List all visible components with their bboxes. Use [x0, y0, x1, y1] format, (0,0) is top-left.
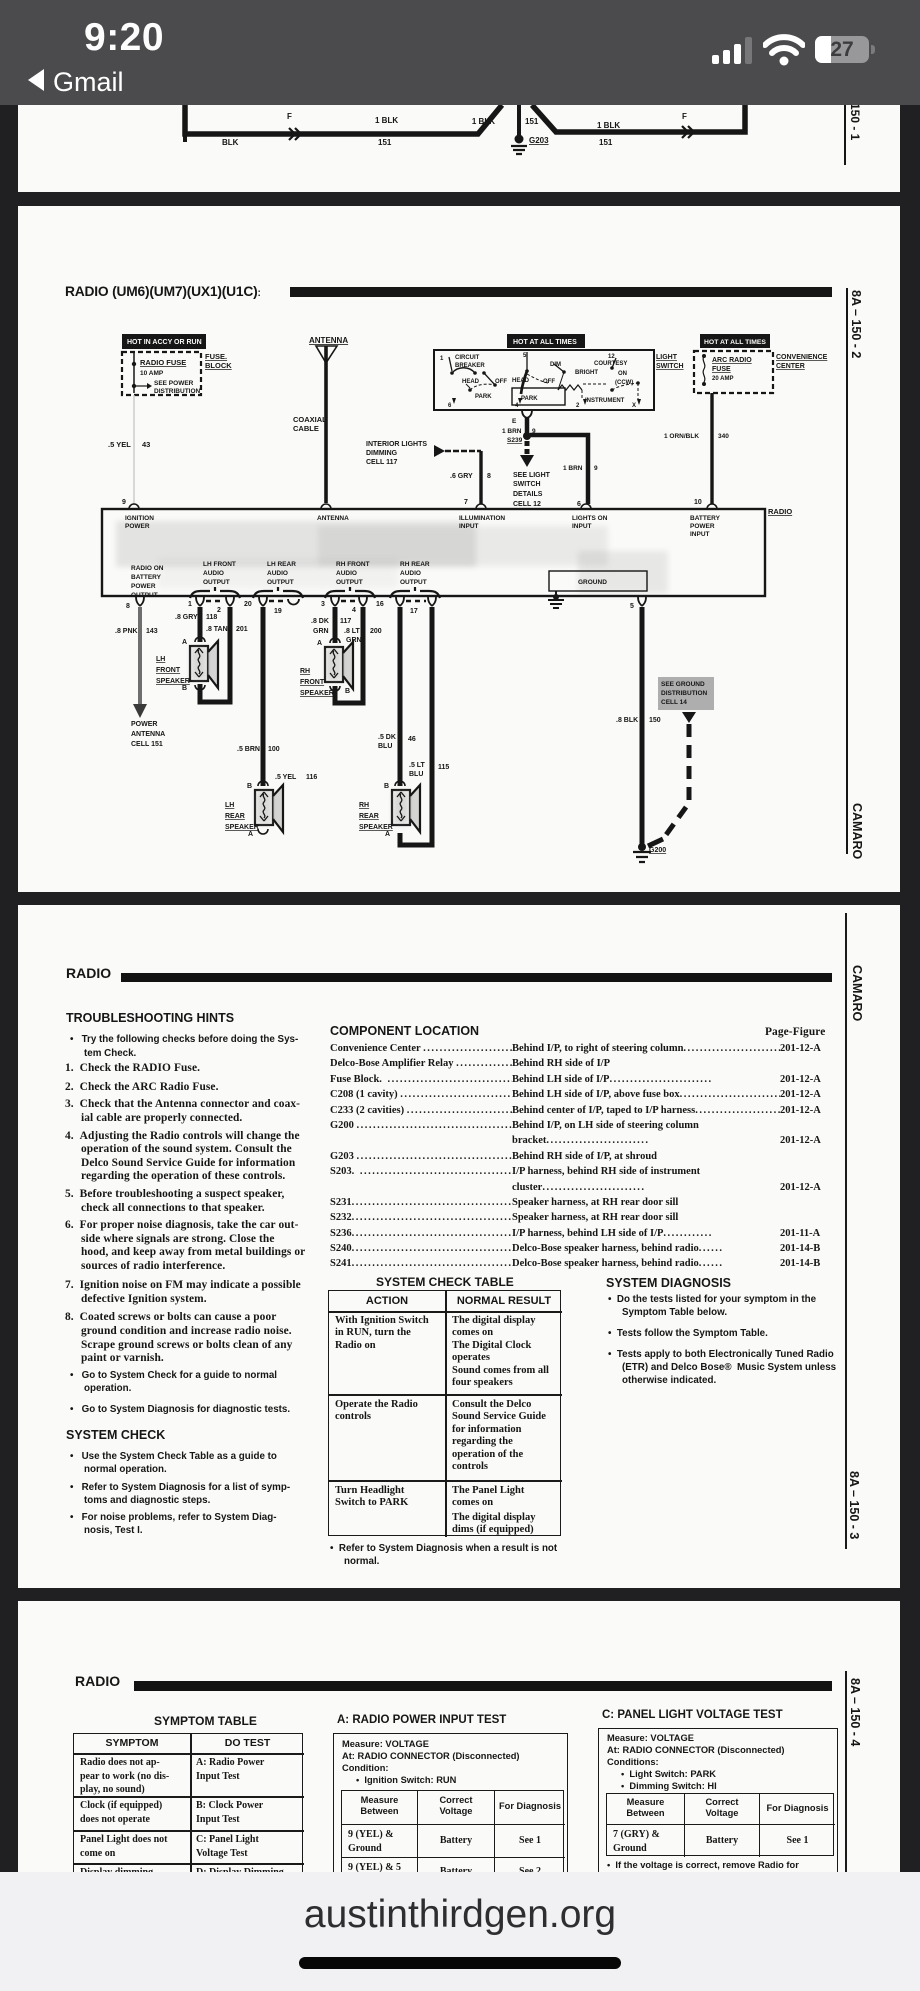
svg-text:.5 YEL: .5 YEL [108, 440, 131, 449]
svg-text:ILLUMINATION: ILLUMINATION [459, 515, 505, 522]
svg-text:3: 3 [321, 601, 325, 608]
svg-text:B: B [247, 783, 252, 790]
svg-text:2: 2 [217, 607, 221, 614]
svg-text:IGNITION: IGNITION [125, 515, 154, 522]
svg-text:POWER: POWER [131, 721, 157, 728]
svg-text:DISTRIBUTION: DISTRIBUTION [661, 690, 708, 697]
svg-text:B: B [384, 783, 389, 790]
svg-text:(CCW): (CCW) [615, 380, 633, 386]
svg-text:RH REAR: RH REAR [400, 561, 430, 568]
svg-text:340: 340 [718, 433, 729, 440]
svg-text:CONVENIENCE: CONVENIENCE [776, 354, 828, 361]
svg-text:1 BRN: 1 BRN [502, 428, 522, 435]
svg-text:COURTESY: COURTESY [594, 361, 627, 367]
svg-text:.8 TAN: .8 TAN [206, 626, 228, 633]
svg-text:150 - 1: 150 - 1 [848, 105, 862, 141]
svg-text:2: 2 [576, 403, 580, 409]
svg-text:CELL 12: CELL 12 [513, 501, 541, 508]
svg-text:BRIGHT: BRIGHT [575, 370, 598, 376]
svg-text:RADIO FUSE: RADIO FUSE [140, 358, 186, 367]
svg-text:B: B [345, 688, 350, 695]
svg-text:115: 115 [438, 764, 449, 771]
svg-text:SWITCH: SWITCH [656, 363, 684, 370]
svg-text:F: F [682, 112, 687, 121]
svg-text:B: B [182, 685, 187, 692]
svg-text:16: 16 [376, 601, 384, 608]
svg-text:OUTPUT: OUTPUT [267, 579, 294, 586]
svg-text:151: 151 [599, 138, 613, 147]
svg-text:151: 151 [378, 138, 392, 147]
svg-text:8: 8 [487, 473, 491, 480]
svg-text:4: 4 [352, 607, 356, 614]
svg-text:GRN: GRN [313, 628, 329, 635]
svg-text:POWER: POWER [131, 583, 156, 590]
svg-text:DETAILS: DETAILS [513, 491, 543, 498]
svg-text:1: 1 [188, 601, 192, 608]
svg-text:RH FRONT: RH FRONT [336, 561, 370, 568]
svg-text:143: 143 [146, 628, 158, 635]
svg-text:.8 BLK: .8 BLK [616, 717, 638, 724]
svg-text:SPEAKER: SPEAKER [225, 824, 259, 831]
svg-text:CAMARO: CAMARO [850, 803, 864, 860]
svg-text:10 AMP: 10 AMP [140, 370, 164, 377]
svg-text:SPEAKER: SPEAKER [300, 690, 334, 697]
svg-text:A: A [248, 831, 253, 838]
svg-text:ANTENNA: ANTENNA [309, 336, 348, 345]
svg-text:1 BLK: 1 BLK [375, 116, 398, 125]
svg-text:RH: RH [359, 802, 369, 809]
svg-text:1 BLK: 1 BLK [472, 117, 495, 126]
svg-text:G203: G203 [529, 136, 549, 145]
svg-text:INTERIOR LIGHTS: INTERIOR LIGHTS [366, 441, 427, 448]
svg-text:.8 PNK: .8 PNK [115, 628, 138, 635]
svg-text:LIGHTS ON: LIGHTS ON [572, 515, 608, 522]
svg-text:DIMMING: DIMMING [366, 450, 398, 457]
svg-text:100: 100 [268, 746, 280, 753]
svg-text:LIGHT: LIGHT [656, 354, 678, 361]
svg-text:INPUT: INPUT [459, 523, 479, 530]
svg-text:BLU: BLU [409, 771, 423, 778]
svg-text:LH REAR: LH REAR [267, 561, 296, 568]
svg-text:A: A [317, 640, 322, 647]
svg-text:RADIO ON: RADIO ON [131, 565, 164, 572]
svg-text:RADIO: RADIO [768, 507, 792, 516]
svg-text:6: 6 [448, 403, 452, 409]
svg-text:HEAD: HEAD [512, 378, 530, 384]
svg-text:ANTENNA: ANTENNA [131, 731, 165, 738]
svg-text:1 ORN/BLK: 1 ORN/BLK [664, 433, 699, 440]
svg-text:SWITCH: SWITCH [513, 481, 541, 488]
svg-text:AUDIO: AUDIO [203, 570, 224, 577]
svg-text:150: 150 [649, 717, 661, 724]
svg-text:LH FRONT: LH FRONT [203, 561, 236, 568]
svg-text:1 BLK: 1 BLK [597, 121, 620, 130]
svg-text:SEE GROUND: SEE GROUND [661, 681, 705, 688]
svg-text:A: A [182, 639, 187, 646]
svg-text:E: E [512, 418, 517, 425]
svg-text:ANTENNA: ANTENNA [317, 515, 349, 522]
svg-text:SEE POWER: SEE POWER [154, 380, 194, 387]
svg-text:CELL 151: CELL 151 [131, 741, 163, 748]
svg-text:118: 118 [206, 614, 217, 621]
svg-text:200: 200 [370, 628, 382, 635]
svg-text:1: 1 [440, 356, 444, 362]
svg-text:RADIO (UM6)(UM7)(UX1)(U1C):: RADIO (UM6)(UM7)(UX1)(U1C): [65, 284, 261, 299]
svg-text:46: 46 [408, 736, 416, 743]
svg-text:43: 43 [142, 440, 150, 449]
svg-text:GROUND: GROUND [578, 579, 607, 586]
svg-text:PARK: PARK [521, 396, 538, 402]
svg-text:REAR: REAR [359, 813, 379, 820]
svg-text:8: 8 [126, 603, 130, 610]
svg-text:CABLE: CABLE [293, 424, 319, 433]
svg-text:REAR: REAR [225, 813, 245, 820]
svg-text:1 BRN: 1 BRN [563, 465, 583, 472]
svg-text:19: 19 [274, 608, 282, 615]
svg-text:S239: S239 [507, 437, 523, 444]
svg-text:OUTPUT: OUTPUT [400, 579, 427, 586]
svg-text:17: 17 [410, 608, 418, 615]
svg-text:AUDIO: AUDIO [336, 570, 357, 577]
svg-text:HOT AT ALL TIMES: HOT AT ALL TIMES [704, 339, 766, 346]
svg-text:FRONT: FRONT [300, 679, 325, 686]
svg-text:X: X [632, 403, 636, 409]
svg-text:BATTERY: BATTERY [131, 574, 162, 581]
svg-text:ON: ON [618, 371, 627, 377]
svg-text:.8 DK: .8 DK [311, 618, 329, 625]
svg-text:AUDIO: AUDIO [400, 570, 421, 577]
svg-text:FUSE.: FUSE. [205, 352, 227, 361]
svg-text:F: F [287, 112, 292, 121]
svg-text:SEE LIGHT: SEE LIGHT [513, 472, 551, 479]
svg-text:COAXIAL: COAXIAL [293, 415, 327, 424]
svg-text:12: 12 [608, 354, 615, 360]
svg-text:BATTERY: BATTERY [690, 515, 721, 522]
svg-text:.5 LT: .5 LT [409, 762, 426, 769]
svg-text:10: 10 [694, 499, 702, 506]
svg-text:117: 117 [340, 618, 351, 625]
svg-text:FRONT: FRONT [156, 667, 181, 674]
svg-text:.5 DK: .5 DK [378, 734, 396, 741]
svg-text:7: 7 [464, 499, 468, 506]
svg-text:BLU: BLU [378, 743, 392, 750]
svg-text:INSTRUMENT: INSTRUMENT [585, 398, 625, 404]
svg-text:INPUT: INPUT [572, 523, 592, 530]
svg-text:4: 4 [515, 403, 519, 409]
svg-text:9: 9 [594, 465, 598, 472]
svg-text:A: A [385, 831, 390, 838]
svg-text:9: 9 [122, 499, 126, 506]
svg-text:.6 GRY: .6 GRY [450, 473, 473, 480]
svg-text:G200: G200 [649, 847, 666, 854]
svg-text:.8 GRY: .8 GRY [175, 614, 198, 621]
svg-text:SPEAKER: SPEAKER [359, 824, 393, 831]
svg-text:HEAD: HEAD [462, 379, 480, 385]
svg-text:FUSE: FUSE [712, 366, 731, 373]
svg-text:RH: RH [300, 668, 310, 675]
svg-text:6: 6 [577, 501, 581, 508]
svg-text:OFF: OFF [543, 379, 555, 385]
svg-text:POWER: POWER [125, 523, 150, 530]
svg-text:BLOCK: BLOCK [205, 361, 232, 370]
svg-text:OFF: OFF [495, 379, 507, 385]
svg-text:POWER: POWER [690, 523, 715, 530]
svg-text:CENTER: CENTER [776, 363, 805, 370]
svg-text:.5 YEL: .5 YEL [275, 774, 297, 781]
svg-text:INPUT: INPUT [690, 531, 710, 538]
svg-text:CELL 117: CELL 117 [366, 459, 397, 466]
svg-text:116: 116 [306, 774, 317, 781]
svg-text:DISTRIBUTION: DISTRIBUTION [154, 388, 201, 395]
svg-text:201: 201 [236, 626, 248, 633]
svg-text:.8 LT: .8 LT [344, 628, 361, 635]
svg-text:SPEAKER: SPEAKER [156, 678, 190, 685]
svg-text:OUTPUT: OUTPUT [336, 579, 363, 586]
svg-text:LH: LH [156, 656, 165, 663]
svg-text:BLK: BLK [222, 138, 239, 147]
svg-text:CIRCUIT: CIRCUIT [455, 355, 480, 361]
svg-text:LH: LH [225, 802, 234, 809]
svg-text:HOT AT ALL TIMES: HOT AT ALL TIMES [513, 339, 577, 346]
svg-text:OUTPUT: OUTPUT [203, 579, 230, 586]
svg-text:8A – 150 - 2: 8A – 150 - 2 [849, 290, 863, 358]
svg-text:PARK: PARK [475, 394, 492, 400]
svg-text:HOT IN ACCY OR RUN: HOT IN ACCY OR RUN [127, 339, 202, 346]
svg-text:151: 151 [525, 117, 539, 126]
svg-text:.5 BRN: .5 BRN [237, 746, 260, 753]
svg-text:20 AMP: 20 AMP [712, 376, 733, 382]
svg-text:ARC RADIO: ARC RADIO [712, 357, 752, 364]
svg-text:20: 20 [244, 601, 252, 608]
svg-text:CELL 14: CELL 14 [661, 699, 687, 706]
svg-text:AUDIO: AUDIO [267, 570, 288, 577]
svg-text:5: 5 [630, 603, 634, 610]
